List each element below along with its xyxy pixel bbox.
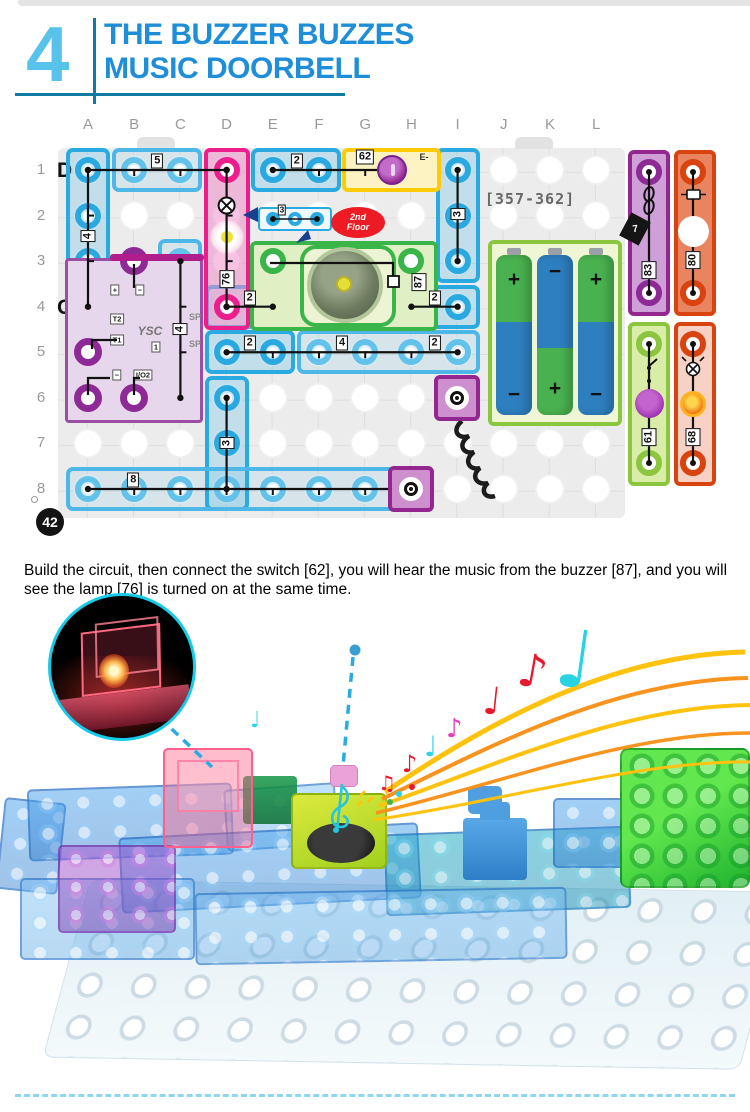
module-pin-t1: T1 — [110, 335, 124, 346]
strip-stud — [636, 159, 662, 185]
floor-text-2: Floor — [347, 222, 370, 232]
battery-sign: − — [549, 260, 561, 284]
callout-dot — [350, 645, 361, 656]
grid-column-label: G — [355, 116, 375, 133]
lamp-filament-dot — [221, 231, 233, 243]
section-number: 4 — [26, 8, 65, 100]
inset-stud — [310, 212, 324, 226]
piece-stud — [260, 157, 286, 183]
wire-length-label: 3 — [450, 208, 465, 220]
strip-stud — [680, 280, 706, 306]
module-box-label: 1 — [151, 342, 160, 353]
header-underline — [15, 93, 345, 96]
module-pin-t2: T2 — [110, 314, 124, 325]
module-top-bar — [110, 254, 204, 261]
part-80-label: 80 — [686, 251, 701, 269]
music-note-icon: ♫ — [378, 773, 396, 793]
strip-stud — [636, 450, 662, 476]
wire-length-label: 8 — [127, 472, 139, 487]
strip-stud — [636, 331, 662, 357]
sp-pin: SP — [189, 339, 201, 349]
lamp-bulb-icon — [680, 391, 706, 417]
buzzer-stud — [398, 248, 424, 274]
lamp-closeup-inset — [48, 593, 196, 741]
battery-box — [620, 748, 750, 888]
piece-stud — [445, 248, 471, 274]
switch-62-label: 62 — [356, 150, 374, 165]
blue-brick — [194, 887, 567, 965]
grid-column-label: B — [124, 116, 144, 133]
push-button — [635, 389, 664, 418]
grid-row-label: 3 — [32, 252, 50, 269]
board-code: [357-362] — [485, 190, 575, 208]
wire-length-label: 2 — [291, 154, 303, 169]
buzzer-brick — [291, 793, 387, 869]
switch-knob — [377, 155, 407, 185]
wire-length-label: 5 — [151, 154, 163, 169]
module-contact — [120, 247, 148, 275]
module-contact — [74, 384, 102, 412]
piece-stud — [445, 339, 471, 365]
page-title-line1: THE BUZZER BUZZES — [104, 18, 414, 52]
battery-sign: − — [508, 383, 520, 407]
music-note-icon: ♩ — [481, 681, 503, 721]
step-number-badge: 42 — [36, 508, 64, 536]
music-note-icon: ♩ — [250, 710, 260, 732]
pink-cap — [330, 765, 358, 787]
wire-length-label: 2 — [428, 290, 440, 305]
module-pin-plus: + — [110, 285, 119, 296]
module-pin-minus2: − — [112, 370, 121, 381]
music-note-icon: ♩ — [424, 733, 437, 761]
strip-stud — [680, 159, 706, 185]
strip-stud — [680, 450, 706, 476]
small-dot — [31, 496, 38, 503]
second-floor-callout: 2nd Floor — [331, 207, 385, 238]
grid-row-label: 1 — [32, 161, 50, 178]
ball-icon — [678, 216, 709, 247]
grid-row-label: 5 — [32, 343, 50, 360]
piece-stud — [352, 476, 378, 502]
module-contact — [120, 384, 148, 412]
battery-sign: + — [590, 268, 602, 292]
piece-stud — [260, 339, 286, 365]
manual-page: 4 THE BUZZER BUZZES MUSIC DOORBELL D C A… — [0, 0, 750, 1112]
top-divider-bar — [18, 0, 750, 6]
grid-column-label: E — [263, 116, 283, 133]
music-note-icon: ♪ — [514, 646, 551, 696]
grid-column-label: I — [448, 116, 468, 133]
battery-terminal — [589, 248, 603, 255]
part-83-label: 83 — [642, 261, 657, 279]
piece-stud — [445, 157, 471, 183]
part-61-label: 61 — [642, 428, 657, 446]
wire-length-label: 2 — [428, 336, 440, 351]
piece-stud — [214, 476, 240, 502]
part-68-label: 68 — [686, 428, 701, 446]
wire-length-label: 4 — [336, 336, 348, 351]
grid-row-label: 8 — [32, 480, 50, 497]
solid-blue-brick — [463, 818, 527, 880]
board-tab — [515, 137, 553, 149]
glowing-bulb — [99, 654, 129, 688]
strip-stud — [680, 331, 706, 357]
piece-stud — [75, 476, 101, 502]
battery-sign: − — [590, 383, 602, 407]
music-note-icon: ♪ — [446, 716, 463, 742]
bottom-dashed-divider — [15, 1094, 735, 1097]
pink-lamp-brick — [163, 748, 253, 848]
module-logo: YSC — [138, 324, 163, 338]
floor-text-1: 2nd — [350, 212, 366, 222]
grid-row-label: 4 — [32, 298, 50, 315]
sp-pin: SP — [189, 312, 201, 322]
wire-length-label: 3 — [219, 436, 234, 448]
buzzer-part-label: 87 — [412, 273, 427, 291]
inset-wire-label: 3 — [278, 205, 286, 216]
module-contact — [74, 338, 102, 366]
switch-terminal-label: E- — [420, 152, 429, 162]
grid-column-label: L — [586, 116, 606, 133]
piece-stud — [121, 157, 147, 183]
piece-stud — [306, 476, 332, 502]
battery-terminal — [548, 248, 562, 255]
lamp-stud — [214, 157, 240, 183]
grid-column-label: A — [78, 116, 98, 133]
wire-length-label: 4 — [81, 230, 96, 242]
grid-row-label: 7 — [32, 434, 50, 451]
speaker-center — [336, 276, 352, 292]
page-title-line2: MUSIC DOORBELL — [104, 52, 370, 86]
piece-stud — [75, 203, 101, 229]
callout-dashed-line — [343, 657, 353, 766]
wire-length-label: 2 — [244, 336, 256, 351]
battery-sign: + — [549, 377, 561, 401]
piece-stud — [75, 157, 101, 183]
music-note-icon: ♪ — [402, 752, 417, 776]
grid-row-label: 6 — [32, 389, 50, 406]
piece-stud — [445, 294, 471, 320]
buzzer-stud — [260, 248, 286, 274]
music-note-icon: ♩ — [551, 618, 600, 702]
circuit-diagram: D C ABCDEFGHIJKL12345678 + − T2 T1 − I/O… — [30, 112, 740, 540]
grid-row-label: 2 — [32, 207, 50, 224]
buzzer-disc — [307, 823, 375, 863]
grid-column-label: C — [170, 116, 190, 133]
inset-stud — [288, 212, 302, 226]
wire-length-label: 4 — [173, 323, 188, 335]
jack-connector — [434, 375, 480, 421]
module-pin-minus: − — [135, 285, 144, 296]
grid-column-label: J — [494, 116, 514, 133]
battery-terminal — [507, 248, 521, 255]
purple-module-brick — [58, 845, 176, 933]
piece-stud — [214, 385, 240, 411]
grid-column-label: H — [401, 116, 421, 133]
wire-length-label: 76 — [219, 270, 234, 288]
piece-stud — [214, 339, 240, 365]
assembled-model-photo: ♩ ♪ ♩ ♪ ♩ ♪ ♫ ♩ — [0, 590, 750, 1075]
strip-stud — [636, 280, 662, 306]
grid-column-label: D — [217, 116, 237, 133]
piece-stud — [260, 476, 286, 502]
header-vertical-rule — [93, 18, 96, 104]
grid-column-label: F — [309, 116, 329, 133]
lamp-stud — [214, 294, 240, 320]
jack-connector — [388, 466, 434, 512]
piece-stud — [306, 157, 332, 183]
battery-sign: + — [508, 268, 520, 292]
module-pin-io2: I/O2 — [133, 370, 152, 381]
grid-column-label: K — [540, 116, 560, 133]
wire-length-label: 2 — [244, 290, 256, 305]
